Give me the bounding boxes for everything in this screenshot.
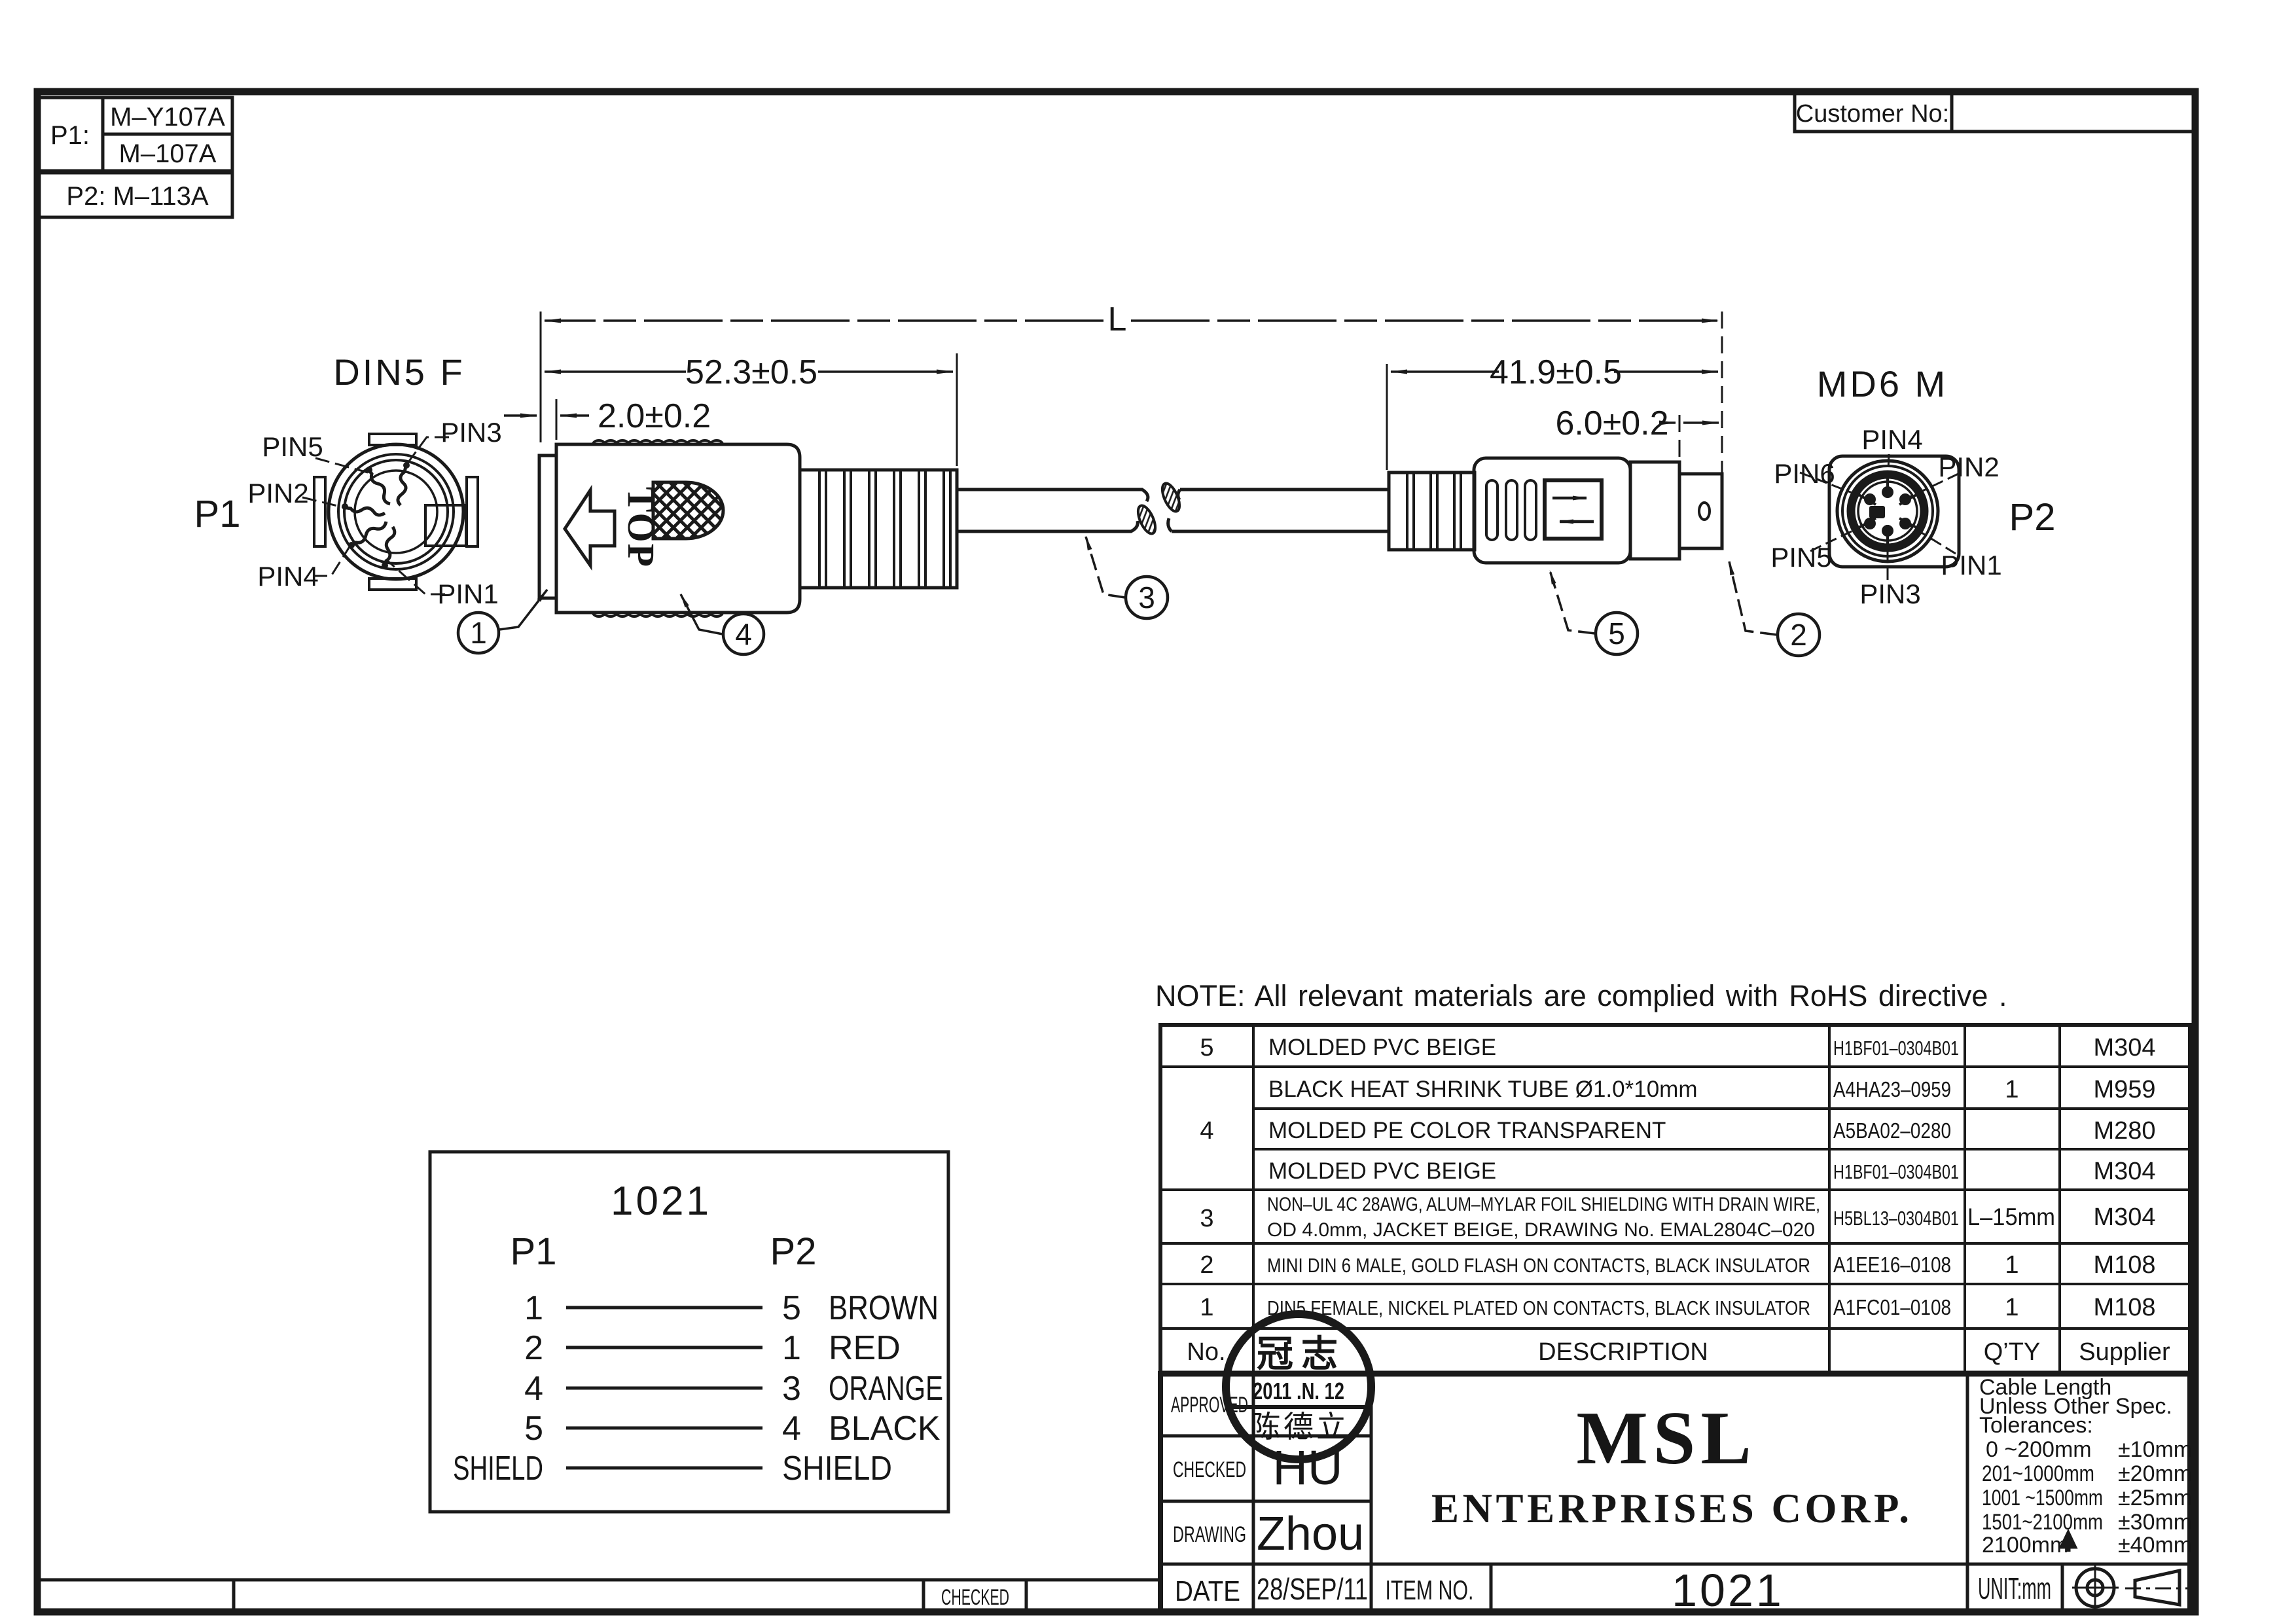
svg-text:MINI DIN 6 MALE, GOLD FLA: MINI DIN 6 MALE, GOLD FLASH ON CONTACTS,…: [1267, 1254, 1810, 1277]
svg-text:UNIT:mm: UNIT:mm: [1978, 1571, 2051, 1605]
svg-text:BROWN: BROWN: [829, 1289, 939, 1327]
svg-text:PIN4: PIN4: [257, 561, 318, 592]
svg-text:P1: P1: [511, 1230, 557, 1273]
svg-text:28/SEP/11: 28/SEP/11: [1257, 1572, 1368, 1606]
svg-text:4: 4: [524, 1370, 543, 1408]
svg-text:±30mm: ±30mm: [2118, 1510, 2192, 1535]
svg-text:MOLDED PVC BEIGE: MOLDED PVC BEIGE: [1268, 1158, 1496, 1184]
svg-text:41.9±0.5: 41.9±0.5: [1490, 353, 1622, 391]
svg-text:P2: P2: [2009, 496, 2056, 539]
svg-text:Zhou: Zhou: [1257, 1508, 1364, 1560]
svg-text:5: 5: [1200, 1034, 1213, 1061]
svg-text:DRAWING: DRAWING: [1173, 1522, 1246, 1547]
svg-text:2100mm: 2100mm: [1982, 1533, 2068, 1558]
svg-text:±20mm: ±20mm: [2118, 1461, 2192, 1486]
svg-text:M–107A: M–107A: [119, 139, 217, 168]
svg-text:1501~2100mm: 1501~2100mm: [1982, 1510, 2103, 1535]
svg-text:M304: M304: [2093, 1158, 2155, 1185]
svg-text:M959: M959: [2093, 1076, 2155, 1103]
svg-text:CHECKED: CHECKED: [1173, 1457, 1246, 1482]
svg-text:L–15mm: L–15mm: [1967, 1204, 2055, 1230]
svg-text:PIN2: PIN2: [1938, 452, 1999, 482]
svg-text:MSL: MSL: [1576, 1397, 1756, 1480]
svg-text:3: 3: [782, 1370, 801, 1408]
svg-text:1: 1: [782, 1329, 801, 1367]
svg-text:2: 2: [524, 1329, 543, 1367]
svg-text:DIN5 FEMALE, NICKEL PLATED: DIN5 FEMALE, NICKEL PLATED ON CONTACTS, …: [1267, 1296, 1810, 1319]
svg-text:DATE: DATE: [1175, 1575, 1240, 1607]
svg-text:5: 5: [1608, 616, 1625, 651]
svg-text:P2: M–113A: P2: M–113A: [66, 182, 208, 211]
svg-text:No.: No.: [1187, 1338, 1225, 1366]
svg-text:M–Y107A: M–Y107A: [110, 103, 225, 132]
svg-text:L: L: [1108, 300, 1127, 338]
svg-text:PIN2: PIN2: [247, 478, 308, 508]
svg-text:5: 5: [782, 1289, 801, 1327]
svg-text:3: 3: [1200, 1205, 1213, 1232]
svg-text:ORANGE: ORANGE: [829, 1370, 943, 1408]
svg-text:A1FC01–0108: A1FC01–0108: [1833, 1295, 1951, 1319]
svg-text:2011 .N. 12: 2011 .N. 12: [1253, 1378, 1344, 1404]
svg-text:RED: RED: [829, 1329, 901, 1367]
svg-text:冠志: 冠志: [1257, 1333, 1346, 1374]
svg-text:1021: 1021: [1672, 1565, 1784, 1616]
svg-text:5: 5: [524, 1410, 543, 1448]
svg-text:Customer No:: Customer No:: [1796, 100, 1949, 128]
svg-text:±10mm: ±10mm: [2118, 1437, 2192, 1462]
svg-text:1: 1: [2005, 1076, 2018, 1103]
svg-text:陈德立: 陈德立: [1251, 1410, 1349, 1444]
svg-text:1021: 1021: [611, 1179, 711, 1224]
svg-text:PIN3: PIN3: [440, 417, 501, 448]
svg-text:H1BF01–0304B01: H1BF01–0304B01: [1833, 1160, 1959, 1183]
svg-text:CHECKED: CHECKED: [941, 1585, 1009, 1610]
svg-text:PIN1: PIN1: [437, 579, 498, 609]
svg-text:BLACK HEAT SHRINK TUBE Ø1.: BLACK HEAT SHRINK TUBE Ø1.0*10mm: [1268, 1077, 1697, 1102]
svg-text:M108: M108: [2093, 1294, 2155, 1321]
svg-text:ITEM NO.: ITEM NO.: [1386, 1575, 1474, 1605]
svg-text:1001 ~1500mm: 1001 ~1500mm: [1982, 1486, 2103, 1510]
svg-text:±25mm: ±25mm: [2118, 1486, 2192, 1510]
svg-text:MOLDED PE COLOR TRANSPARENT: MOLDED PE COLOR TRANSPARENT: [1268, 1118, 1666, 1143]
svg-text:OD 4.0mm, JACKET BEIGE, DR: OD 4.0mm, JACKET BEIGE, DRAWING No. EMAL…: [1267, 1219, 1815, 1241]
svg-text:2: 2: [1790, 618, 1807, 652]
svg-text:MD6 M: MD6 M: [1817, 363, 1948, 404]
svg-text:Q’TY: Q’TY: [1984, 1338, 2041, 1366]
svg-text:±40mm: ±40mm: [2118, 1533, 2192, 1558]
svg-text:A1EE16–0108: A1EE16–0108: [1833, 1253, 1951, 1277]
svg-text:PIN4: PIN4: [1861, 424, 1922, 455]
svg-text:2.0±0.2: 2.0±0.2: [598, 397, 711, 435]
svg-text:DIN5 F: DIN5 F: [333, 351, 465, 393]
svg-text:Supplier: Supplier: [2079, 1338, 2170, 1366]
svg-text:201~1000mm: 201~1000mm: [1982, 1461, 2094, 1486]
svg-text:4: 4: [782, 1410, 801, 1448]
svg-text:6.0±0.2: 6.0±0.2: [1555, 404, 1668, 442]
svg-text:2: 2: [1200, 1251, 1213, 1279]
svg-text:SHIELD: SHIELD: [782, 1450, 892, 1488]
svg-text:PIN1: PIN1: [1941, 550, 2001, 580]
svg-text:A5BA02–0280: A5BA02–0280: [1833, 1118, 1951, 1143]
svg-text:P2: P2: [770, 1230, 817, 1273]
svg-text:1: 1: [1200, 1294, 1213, 1321]
svg-text:H5BL13–0304B01: H5BL13–0304B01: [1833, 1207, 1959, 1230]
svg-text:P1:: P1:: [50, 121, 90, 150]
svg-text:M304: M304: [2093, 1034, 2155, 1061]
svg-text:PIN5: PIN5: [1770, 542, 1831, 573]
svg-text:PIN5: PIN5: [262, 431, 323, 462]
svg-text:1: 1: [2005, 1294, 2018, 1321]
svg-text:SHIELD: SHIELD: [453, 1450, 543, 1488]
svg-text:NOTE: All relevant material: NOTE: All relevant materials are complie…: [1155, 979, 2007, 1012]
svg-text:M304: M304: [2093, 1204, 2155, 1231]
svg-text:1: 1: [2005, 1251, 2018, 1279]
svg-text:M108: M108: [2093, 1251, 2155, 1279]
svg-text:PIN3: PIN3: [1859, 579, 1920, 609]
svg-text:DESCRIPTION: DESCRIPTION: [1538, 1338, 1708, 1366]
svg-text:1: 1: [524, 1289, 543, 1327]
svg-text:4: 4: [735, 617, 752, 651]
svg-text:4: 4: [1200, 1117, 1213, 1145]
svg-text:Tolerances:: Tolerances:: [1979, 1413, 2093, 1438]
svg-text:BLACK: BLACK: [829, 1410, 941, 1448]
svg-text:3: 3: [1138, 580, 1155, 615]
svg-text:1: 1: [470, 616, 487, 650]
svg-text:0 ~200mm: 0 ~200mm: [1986, 1437, 2092, 1462]
svg-text:NON–UL 4C 28AWG, ALUM–MYLAR: NON–UL 4C 28AWG, ALUM–MYLAR FOIL SHIELDI…: [1267, 1194, 1820, 1215]
svg-text:52.3±0.5: 52.3±0.5: [685, 353, 817, 391]
svg-text:M280: M280: [2093, 1117, 2155, 1145]
svg-text:A4HA23–0959: A4HA23–0959: [1833, 1077, 1951, 1101]
svg-text:H1BF01–0304B01: H1BF01–0304B01: [1833, 1037, 1959, 1060]
svg-text:P1: P1: [194, 493, 241, 535]
svg-text:MOLDED PVC BEIGE: MOLDED PVC BEIGE: [1268, 1035, 1496, 1060]
